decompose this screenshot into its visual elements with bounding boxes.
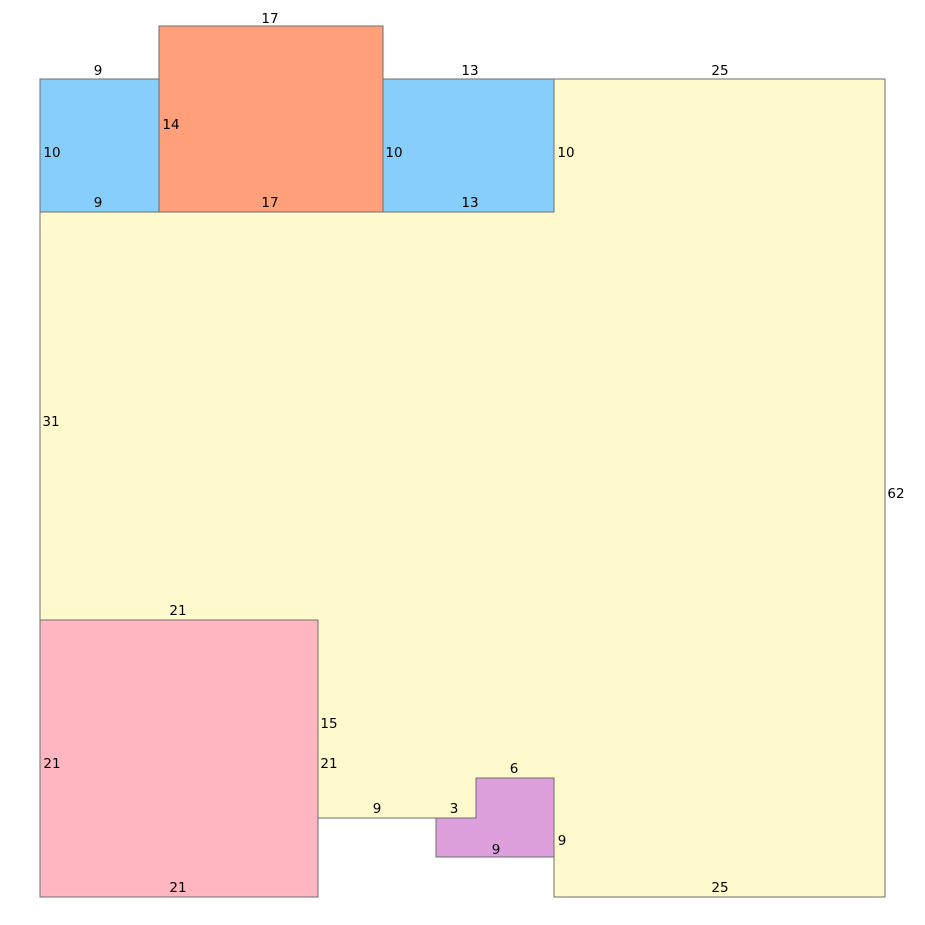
dimension-label: 15 (320, 716, 337, 732)
dimension-label: 17 (261, 195, 278, 211)
dimension-label: 31 (42, 414, 59, 430)
dimension-label: 10 (557, 145, 574, 161)
pink-rect (40, 620, 318, 897)
dimension-label: 9 (558, 833, 567, 849)
dimension-label: 21 (169, 603, 186, 619)
packing-diagram: 1791325141010109171331622115212193699212… (0, 0, 925, 925)
dimension-label: 9 (492, 842, 501, 858)
dimension-label: 25 (711, 880, 728, 896)
dimension-label: 21 (320, 756, 337, 772)
diagram-svg: 1791325141010109171331622115212193699212… (0, 0, 925, 925)
dimension-label: 13 (461, 63, 478, 79)
dimension-label: 25 (711, 63, 728, 79)
dimension-label: 21 (169, 880, 186, 896)
dimension-label: 6 (510, 761, 519, 777)
dimension-label: 17 (261, 11, 278, 27)
dimension-label: 13 (461, 195, 478, 211)
dimension-label: 3 (450, 801, 459, 817)
dimension-label: 10 (385, 145, 402, 161)
dimension-label: 14 (162, 117, 179, 133)
dimension-label: 62 (887, 486, 904, 502)
dimension-label: 9 (94, 195, 103, 211)
dimension-label: 9 (373, 801, 382, 817)
salmon-rect (159, 26, 383, 212)
blue-rect-right (383, 79, 554, 212)
dimension-label: 9 (94, 63, 103, 79)
dimension-label: 21 (43, 756, 60, 772)
dimension-label: 10 (43, 145, 60, 161)
